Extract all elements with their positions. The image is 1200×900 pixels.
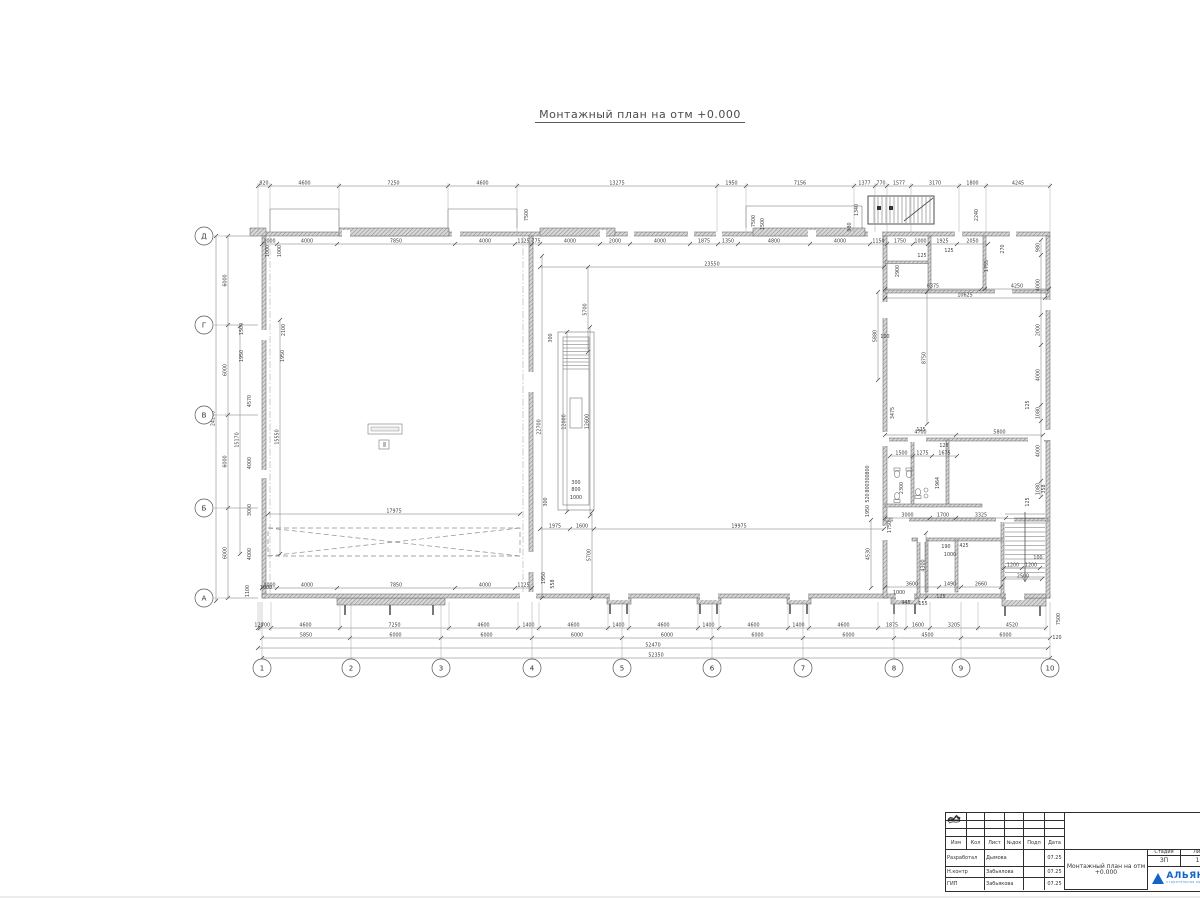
floor-plan-drawing: 8204600725046001327519507156137777015773…: [0, 0, 1200, 900]
svg-text:1964: 1964: [935, 477, 941, 489]
svg-text:4000: 4000: [247, 457, 253, 469]
svg-text:1080: 1080: [1035, 407, 1041, 419]
svg-text:13275: 13275: [609, 180, 624, 186]
svg-text:100: 100: [880, 334, 889, 340]
svg-text:1350: 1350: [722, 238, 734, 244]
svg-text:1400: 1400: [612, 622, 624, 628]
svg-text:4: 4: [530, 665, 535, 673]
svg-text:4000: 4000: [654, 238, 666, 244]
drawing-sheet: { "title": "Монтажный план на отм +0.000…: [0, 0, 1200, 900]
svg-text:6000: 6000: [480, 632, 492, 638]
svg-text:820: 820: [259, 180, 268, 186]
svg-text:4300: 4300: [920, 559, 926, 571]
svg-text:1875: 1875: [698, 238, 710, 244]
svg-text:4000: 4000: [479, 582, 491, 588]
svg-text:8: 8: [892, 665, 896, 673]
stamp-header-kol: Кол: [967, 837, 985, 850]
svg-text:22700: 22700: [536, 419, 542, 434]
svg-text:15550: 15550: [274, 429, 280, 444]
svg-text:4000: 4000: [479, 238, 491, 244]
stamp-date-ncontrol: 07.25: [1045, 867, 1065, 878]
svg-text:4600: 4600: [299, 622, 311, 628]
svg-text:3: 3: [439, 665, 443, 673]
svg-text:7156: 7156: [794, 180, 806, 186]
svg-text:558: 558: [550, 579, 556, 588]
svg-text:300: 300: [548, 333, 554, 342]
signature: [1024, 867, 1045, 878]
svg-text:980: 980: [1035, 243, 1041, 252]
svg-text:Д: Д: [201, 233, 207, 241]
svg-text:2300: 2300: [899, 482, 905, 494]
svg-text:1000: 1000: [570, 495, 582, 501]
svg-text:1000: 1000: [944, 552, 956, 558]
svg-text:1755: 1755: [984, 260, 990, 272]
svg-text:1950: 1950: [239, 350, 245, 362]
logo-triangle-icon: [1152, 873, 1164, 884]
svg-text:125: 125: [936, 594, 945, 600]
svg-text:520: 520: [865, 493, 871, 502]
svg-text:12600: 12600: [584, 414, 590, 429]
svg-text:3170: 3170: [929, 180, 941, 186]
svg-text:190: 190: [941, 544, 950, 550]
svg-text:1675: 1675: [938, 450, 950, 456]
stamp-name-ncontrol: Забьялова: [985, 867, 1024, 878]
svg-text:1100: 1100: [245, 585, 251, 597]
svg-text:2000: 2000: [1035, 324, 1041, 336]
svg-text:300: 300: [543, 497, 549, 506]
svg-text:1950: 1950: [725, 180, 737, 186]
title-block: Изм Кол Лист №док Подп Дата Разработал Д…: [945, 812, 1200, 892]
svg-text:1000: 1000: [277, 245, 283, 257]
svg-text:5: 5: [620, 665, 624, 673]
svg-text:5880: 5880: [872, 330, 878, 342]
stamp-header-ndok: №док: [1005, 837, 1024, 850]
svg-text:7500: 7500: [751, 215, 757, 227]
svg-text:1925: 1925: [936, 238, 948, 244]
svg-text:6000: 6000: [751, 632, 763, 638]
svg-text:125: 125: [939, 443, 948, 449]
svg-text:19975: 19975: [731, 523, 746, 529]
svg-text:980: 980: [847, 222, 853, 231]
company-logo: АЛЬЯНС строительная компания: [1148, 867, 1200, 890]
signature: [1024, 878, 1045, 890]
svg-text:800: 800: [865, 483, 871, 492]
svg-text:4600: 4600: [477, 622, 489, 628]
svg-text:1600: 1600: [912, 622, 924, 628]
logo-company-subtitle: строительная компания: [1166, 881, 1200, 884]
svg-text:3475: 3475: [890, 407, 896, 419]
svg-text:1000: 1000: [914, 238, 926, 244]
svg-text:7500: 7500: [1056, 613, 1062, 625]
stamp-date-developer: 07.25: [1045, 850, 1065, 867]
svg-text:1700: 1700: [937, 512, 949, 518]
svg-text:1950: 1950: [280, 350, 286, 362]
svg-text:3325: 3325: [975, 512, 987, 518]
svg-text:1377: 1377: [858, 180, 870, 186]
svg-text:4600: 4600: [657, 622, 669, 628]
svg-text:6375: 6375: [927, 283, 939, 289]
svg-text:6000: 6000: [389, 632, 401, 638]
svg-text:125: 125: [1025, 400, 1031, 409]
svg-text:358: 358: [1041, 484, 1047, 493]
svg-text:7500: 7500: [524, 209, 530, 221]
svg-text:1200: 1200: [1007, 562, 1019, 568]
stamp-header-izm: Изм: [946, 837, 967, 850]
svg-text:7850: 7850: [390, 238, 402, 244]
svg-text:7: 7: [801, 665, 805, 673]
svg-text:4500: 4500: [921, 632, 933, 638]
svg-text:4245: 4245: [1012, 180, 1024, 186]
svg-text:5700: 5700: [582, 303, 588, 315]
svg-text:1750: 1750: [894, 238, 906, 244]
svg-text:23550: 23550: [704, 261, 719, 267]
svg-text:700: 700: [261, 622, 270, 628]
svg-text:4000: 4000: [834, 238, 846, 244]
svg-text:1340: 1340: [854, 204, 860, 216]
svg-text:6000: 6000: [999, 632, 1011, 638]
svg-text:4000: 4000: [1035, 369, 1041, 381]
svg-text:2050: 2050: [966, 238, 978, 244]
svg-text:2000: 2000: [609, 238, 621, 244]
svg-text:1875: 1875: [886, 622, 898, 628]
svg-text:445: 445: [901, 600, 910, 606]
stamp-header-list: Лист: [985, 837, 1005, 850]
svg-text:6000: 6000: [842, 632, 854, 638]
svg-text:12000: 12000: [561, 414, 567, 429]
svg-text:100: 100: [1033, 555, 1042, 561]
svg-text:300: 300: [865, 474, 871, 483]
svg-text:6: 6: [710, 665, 715, 673]
svg-text:8750: 8750: [921, 352, 927, 364]
stamp-role-gip: ГИП: [946, 878, 985, 890]
svg-text:1: 1: [260, 665, 264, 673]
svg-text:Г: Г: [202, 322, 206, 330]
svg-text:1950: 1950: [865, 505, 871, 517]
svg-text:425: 425: [959, 543, 968, 549]
svg-text:4000: 4000: [564, 238, 576, 244]
svg-text:10: 10: [1046, 665, 1055, 673]
svg-text:52350: 52350: [648, 652, 663, 658]
svg-text:1490: 1490: [944, 581, 956, 587]
stamp-sheet-value: 18: [1196, 856, 1200, 866]
svg-text:15170: 15170: [234, 432, 240, 447]
stamp-header-data: Дата: [1045, 837, 1065, 850]
svg-text:1200: 1200: [1025, 562, 1037, 568]
svg-text:5850: 5850: [300, 632, 312, 638]
svg-text:3000: 3000: [901, 512, 913, 518]
svg-text:Б: Б: [202, 505, 207, 513]
svg-text:7850: 7850: [390, 582, 402, 588]
svg-text:7250: 7250: [387, 180, 399, 186]
svg-text:2660: 2660: [975, 581, 987, 587]
svg-text:125: 125: [1025, 497, 1031, 506]
svg-text:2500: 2500: [1017, 573, 1029, 579]
svg-text:52470: 52470: [645, 642, 660, 648]
svg-text:6000: 6000: [222, 274, 228, 286]
svg-text:770: 770: [876, 180, 885, 186]
svg-text:1750: 1750: [887, 521, 893, 533]
svg-text:В: В: [202, 412, 207, 420]
svg-text:1400: 1400: [522, 622, 534, 628]
svg-text:6000: 6000: [571, 632, 583, 638]
svg-text:1000: 1000: [893, 590, 905, 596]
svg-text:4600: 4600: [476, 180, 488, 186]
svg-text:4600: 4600: [298, 180, 310, 186]
stamp-date-gip: 07.25: [1045, 878, 1065, 890]
stamp-upper-cell: [1065, 813, 1200, 850]
svg-text:775: 775: [531, 238, 540, 244]
svg-text:300: 300: [571, 480, 580, 486]
svg-text:120: 120: [1052, 635, 1061, 641]
dimensions-layer: 8204600725046001327519507156137777015773…: [210, 180, 1062, 660]
svg-text:4000: 4000: [301, 582, 313, 588]
svg-text:1125: 1125: [517, 582, 529, 588]
svg-text:4000: 4000: [301, 238, 313, 244]
svg-text:4800: 4800: [768, 238, 780, 244]
svg-text:2100: 2100: [281, 324, 287, 336]
svg-text:4600: 4600: [837, 622, 849, 628]
svg-text:4250: 4250: [1011, 283, 1023, 289]
svg-text:9: 9: [959, 665, 963, 673]
svg-text:7250: 7250: [388, 622, 400, 628]
svg-text:4530: 4530: [865, 548, 871, 560]
svg-text:3600: 3600: [906, 581, 918, 587]
svg-text:1577: 1577: [893, 180, 905, 186]
svg-text:4520: 4520: [1006, 622, 1018, 628]
svg-text:3000: 3000: [247, 504, 253, 516]
svg-text:1500: 1500: [760, 218, 766, 230]
svg-text:А: А: [202, 595, 207, 603]
svg-text:5700: 5700: [586, 549, 592, 561]
svg-text:1000: 1000: [260, 585, 272, 591]
svg-text:270: 270: [1000, 244, 1006, 253]
svg-text:1975: 1975: [549, 523, 561, 529]
svg-text:155: 155: [918, 601, 927, 607]
signature: [1024, 850, 1045, 867]
svg-text:6000: 6000: [222, 547, 228, 559]
svg-text:125: 125: [916, 427, 925, 433]
svg-text:3205: 3205: [948, 622, 960, 628]
stamp-role-ncontrol: Н.контр: [946, 867, 985, 878]
svg-text:2: 2: [349, 665, 353, 673]
stamp-role-developer: Разработал: [946, 850, 985, 867]
svg-text:4000: 4000: [1035, 445, 1041, 457]
svg-text:1000: 1000: [263, 238, 275, 244]
svg-text:800: 800: [865, 465, 871, 474]
svg-text:4000: 4000: [1035, 279, 1041, 291]
svg-text:4600: 4600: [567, 622, 579, 628]
svg-text:1125: 1125: [517, 238, 529, 244]
svg-text:1275: 1275: [916, 450, 928, 456]
svg-text:1950: 1950: [541, 572, 547, 584]
svg-text:800: 800: [571, 487, 580, 493]
svg-text:125: 125: [944, 248, 953, 254]
svg-text:4000: 4000: [247, 548, 253, 560]
svg-text:1000: 1000: [265, 245, 271, 257]
stamp-stage-value: ЗП: [1160, 856, 1168, 866]
svg-text:1500: 1500: [239, 323, 245, 335]
svg-text:1800: 1800: [966, 180, 978, 186]
svg-text:1080: 1080: [1035, 483, 1041, 495]
svg-text:6000: 6000: [222, 455, 228, 467]
svg-text:17975: 17975: [386, 508, 401, 514]
svg-text:5800: 5800: [993, 429, 1005, 435]
svg-text:6000: 6000: [661, 632, 673, 638]
svg-text:4570: 4570: [247, 395, 253, 407]
svg-text:125: 125: [917, 253, 926, 259]
stamp-name-gip: Забьякова: [985, 878, 1024, 890]
svg-text:1500: 1500: [895, 450, 907, 456]
svg-text:6000: 6000: [222, 364, 228, 376]
svg-text:1150: 1150: [872, 238, 884, 244]
svg-text:2240: 2240: [974, 209, 980, 221]
stamp-header-podp: Подп: [1024, 837, 1045, 850]
stamp-doc-title: Монтажный план на отм +0.000: [1065, 850, 1148, 890]
svg-text:10625: 10625: [957, 292, 972, 298]
svg-text:1400: 1400: [702, 622, 714, 628]
stamp-name-developer: Дымова: [985, 850, 1024, 867]
svg-text:1600: 1600: [576, 523, 588, 529]
svg-text:2900: 2900: [895, 265, 901, 277]
svg-text:4600: 4600: [747, 622, 759, 628]
